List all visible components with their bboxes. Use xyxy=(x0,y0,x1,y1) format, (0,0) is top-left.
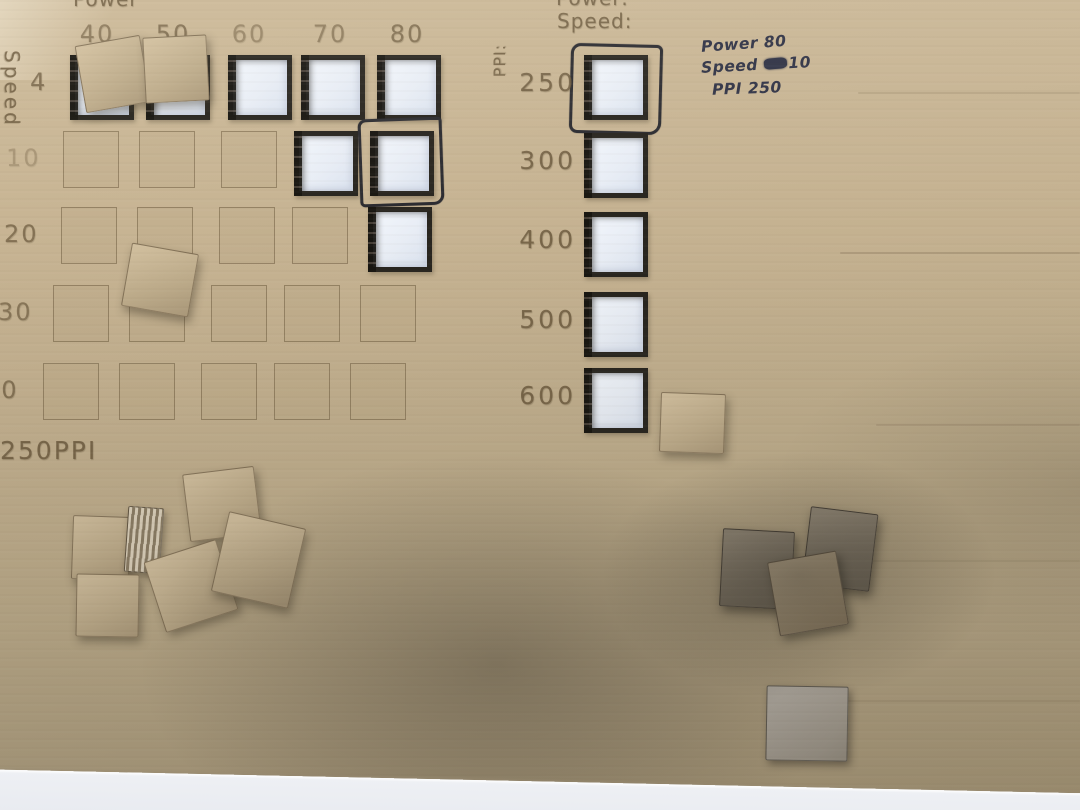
piece-beside-ppi600 xyxy=(659,392,726,454)
test-cell-power70-speed10 xyxy=(294,131,358,196)
scribbled-out-value: 30 xyxy=(763,57,786,70)
test-cell-power80-speed10 xyxy=(370,131,434,196)
ppi-row-label-600: 600 xyxy=(500,381,576,410)
speed-row-label-40: 40 xyxy=(0,376,19,404)
piece-cluster-left-2 xyxy=(71,515,131,581)
piece-cluster-left-6 xyxy=(211,511,306,609)
test-cell-power60-speed40 xyxy=(201,363,257,420)
marker-annotation xyxy=(569,43,663,135)
ppi-cell-300 xyxy=(584,133,648,198)
test-cell-power80-speed4 xyxy=(377,55,441,120)
speed-row-label-10: 10 xyxy=(6,144,41,172)
handwritten-speed-text: Speed xyxy=(701,56,759,77)
speed-row-label-30: 30 xyxy=(0,298,33,326)
speed-axis-label: Speed xyxy=(0,50,24,128)
piece-cluster-left-4 xyxy=(75,573,139,637)
test-cell-power70-speed30 xyxy=(284,285,340,342)
test-cell-power60-speed10 xyxy=(221,131,277,188)
test-cell-power50-speed40 xyxy=(119,363,175,420)
power-col-header-80: 80 xyxy=(385,20,429,48)
ppi-row-label-500: 500 xyxy=(500,305,576,334)
test-cell-power80-speed20 xyxy=(368,207,432,272)
speed-row-label-20: 20 xyxy=(4,220,39,248)
ppi-row-label-300: 300 xyxy=(500,146,576,175)
cardboard-crease xyxy=(876,424,1080,426)
test-cell-power70-speed20 xyxy=(292,207,348,264)
power-col-header-60: 60 xyxy=(227,20,271,48)
test-cell-power40-speed10 xyxy=(63,131,119,188)
test-cell-power60-speed30 xyxy=(211,285,267,342)
ppi-cell-250 xyxy=(584,55,648,120)
test-cell-power80-speed40 xyxy=(350,363,406,420)
cardboard-crease xyxy=(830,700,1080,702)
handwritten-power-text: Power 80 xyxy=(701,32,788,56)
ppi-footer-label: 250PPI xyxy=(0,436,97,465)
piece-on-hole-power50 xyxy=(142,34,209,103)
test-cell-power80-speed30 xyxy=(360,285,416,342)
piece-on-hole-power40 xyxy=(75,35,152,113)
handwritten-notes: Power 80 Speed3010 PPI 250 xyxy=(701,34,811,97)
test-cell-power40-speed30 xyxy=(53,285,109,342)
test-cell-power60-speed20 xyxy=(219,207,275,264)
piece-bottom-right xyxy=(765,685,848,761)
cardboard-crease xyxy=(858,92,1080,94)
test-cell-power50-speed10 xyxy=(139,131,195,188)
right-speed-axis-label: Speed: xyxy=(557,9,632,33)
handwritten-ppi-text: PPI 250 xyxy=(712,78,782,98)
test-cell-power60-speed4 xyxy=(228,55,292,120)
test-cell-power40-speed40 xyxy=(43,363,99,420)
handwritten-note-ppi: PPI 250 xyxy=(712,77,812,98)
ppi-cell-400 xyxy=(584,212,648,277)
speed-row-label-4: 4 xyxy=(30,68,47,96)
test-cell-power40-speed20 xyxy=(61,207,117,264)
handwritten-note-speed: Speed3010 xyxy=(701,53,812,77)
test-cell-power70-speed40 xyxy=(274,363,330,420)
handwritten-speed-value: 10 xyxy=(788,53,811,72)
test-cell-power70-speed4 xyxy=(301,55,365,120)
ppi-row-label-400: 400 xyxy=(500,225,576,254)
marker-annotation xyxy=(357,117,444,208)
cardboard-test-card-photo: Power Speed 250PPI Power: Speed: PPI: Po… xyxy=(0,0,1080,810)
piece-on-grid-speed20 xyxy=(121,243,199,318)
handwritten-note-power: Power 80 xyxy=(701,30,812,56)
piece-cluster-right-3 xyxy=(767,550,849,636)
cardboard-crease xyxy=(846,560,1080,562)
cardboard-sheet: Power Speed 250PPI Power: Speed: PPI: Po… xyxy=(0,0,1080,810)
ppi-row-label-250: 250 xyxy=(500,68,576,97)
power-col-header-70: 70 xyxy=(308,20,352,48)
ppi-cell-600 xyxy=(584,368,648,433)
cardboard-crease xyxy=(840,252,1080,254)
power-axis-label: Power xyxy=(73,0,138,11)
ppi-cell-500 xyxy=(584,292,648,357)
